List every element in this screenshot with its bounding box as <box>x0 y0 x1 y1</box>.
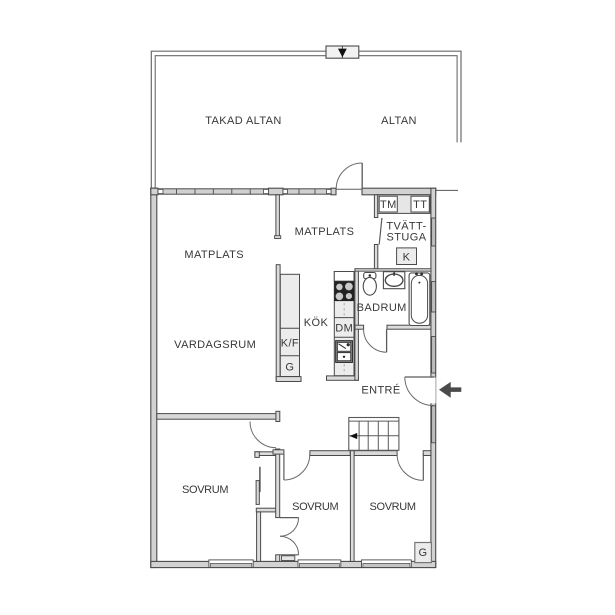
svg-text:SOVRUM: SOVRUM <box>182 484 228 496</box>
svg-text:TVÄTT-: TVÄTT- <box>386 220 426 232</box>
svg-text:DM: DM <box>335 322 353 334</box>
svg-text:G: G <box>285 361 294 373</box>
svg-text:MATPLATS: MATPLATS <box>295 226 355 238</box>
svg-text:TAKAD ALTAN: TAKAD ALTAN <box>205 115 282 127</box>
svg-text:STUGA: STUGA <box>387 232 427 244</box>
svg-text:KÖK: KÖK <box>304 317 329 329</box>
svg-text:G: G <box>419 547 428 559</box>
svg-text:TM: TM <box>380 199 397 211</box>
svg-text:K: K <box>403 251 411 263</box>
svg-text:MATPLATS: MATPLATS <box>184 249 244 261</box>
svg-text:ALTAN: ALTAN <box>381 115 417 127</box>
svg-text:K/F: K/F <box>281 337 299 349</box>
svg-text:SOVRUM: SOVRUM <box>370 501 416 513</box>
svg-text:SOVRUM: SOVRUM <box>292 501 338 513</box>
svg-text:TT: TT <box>413 199 427 211</box>
svg-text:ENTRÉ: ENTRÉ <box>361 383 400 396</box>
svg-text:VARDAGSRUM: VARDAGSRUM <box>174 339 256 351</box>
svg-text:BADRUM: BADRUM <box>357 302 407 314</box>
